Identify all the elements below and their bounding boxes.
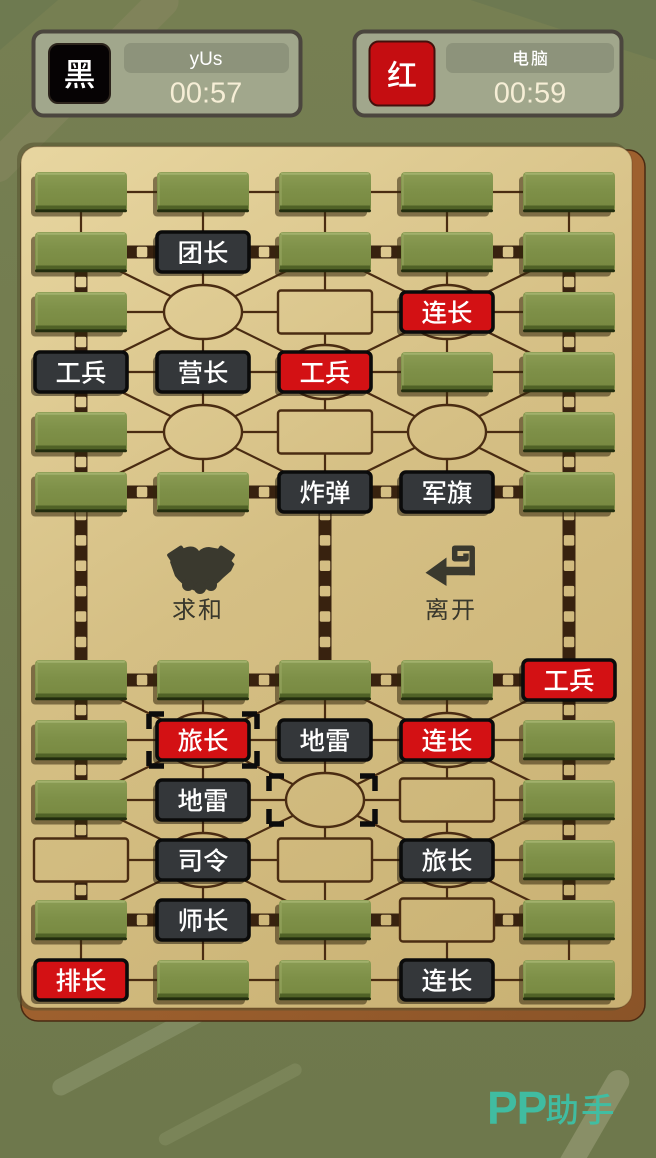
svg-text:00:59: 00:59 (494, 78, 567, 110)
svg-text:00:57: 00:57 (170, 78, 243, 110)
svg-text:PP: PP (487, 1082, 547, 1134)
svg-text:yUs: yUs (190, 49, 223, 70)
